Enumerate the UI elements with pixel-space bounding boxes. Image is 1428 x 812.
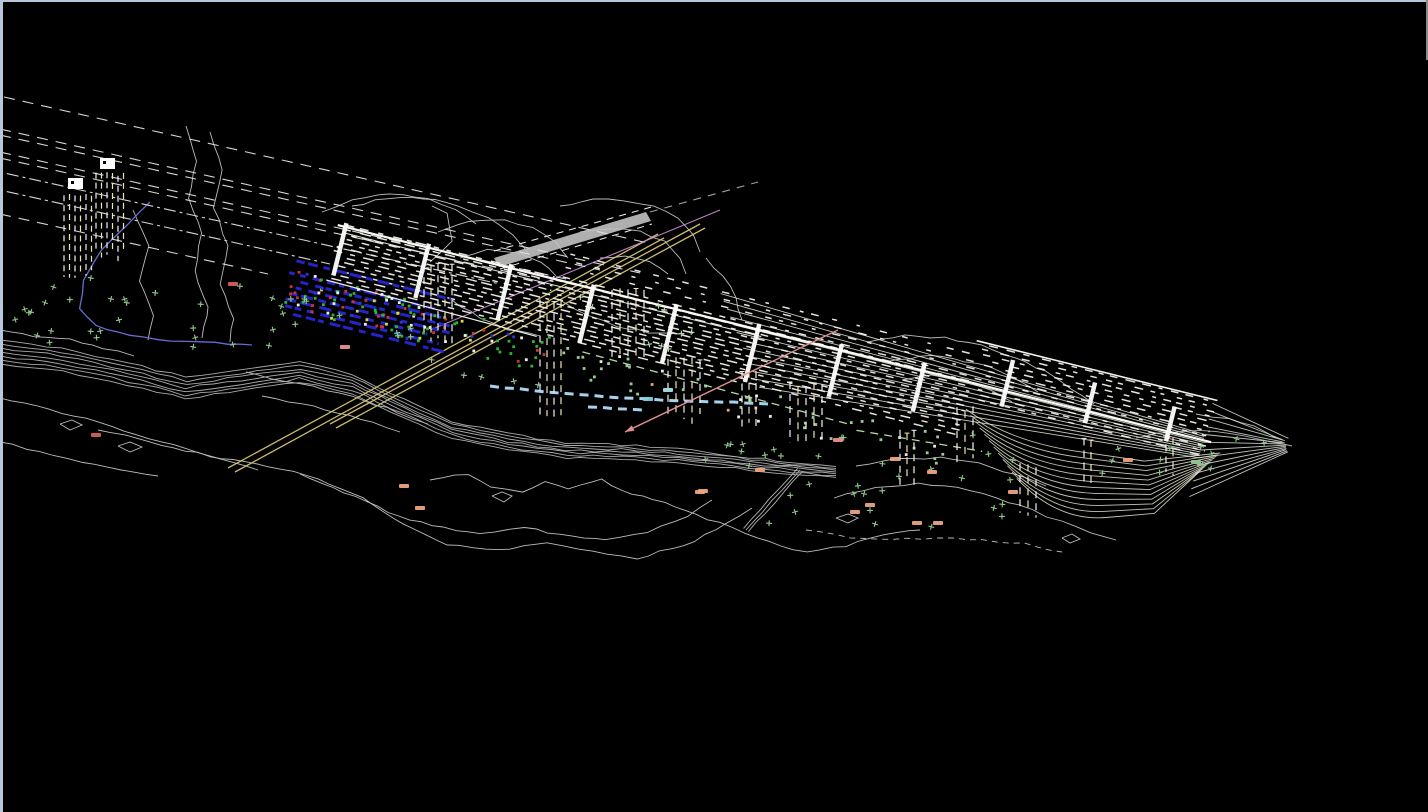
cad-drawing-canvas[interactable] [0, 0, 1428, 812]
application-window [0, 0, 1428, 812]
window-border-top [0, 0, 1428, 2]
window-border-left [0, 0, 3, 812]
